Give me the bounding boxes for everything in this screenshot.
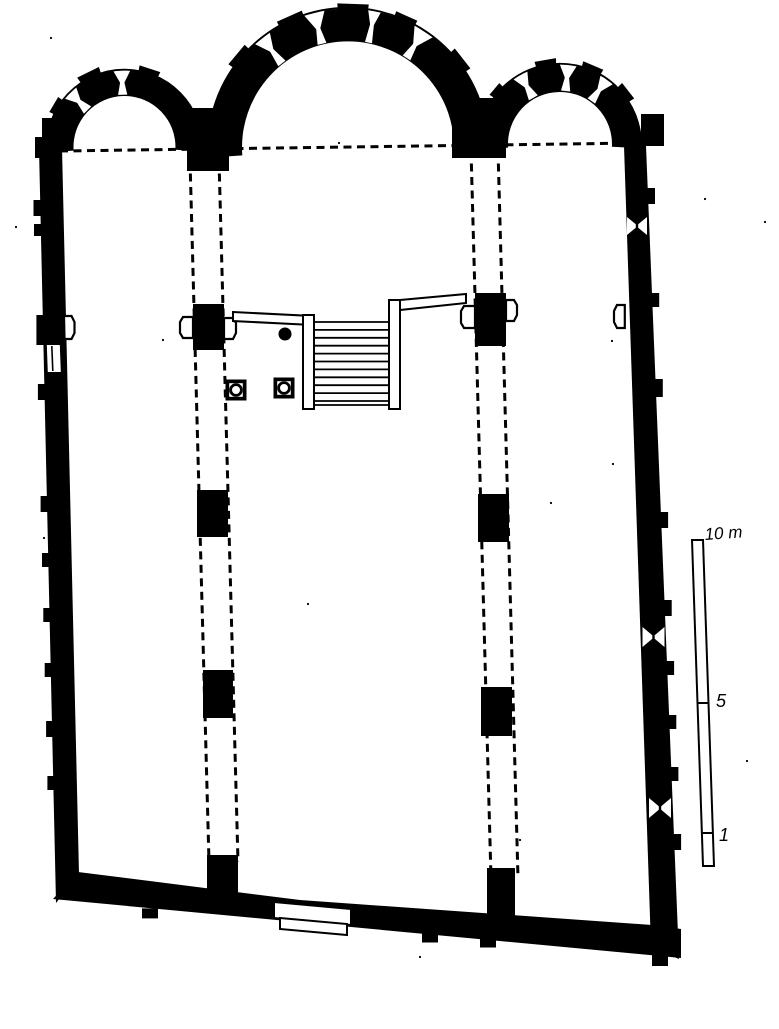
svg-text:5: 5	[716, 691, 727, 711]
svg-text:1: 1	[719, 825, 729, 845]
svg-text:10 m: 10 m	[704, 522, 743, 544]
